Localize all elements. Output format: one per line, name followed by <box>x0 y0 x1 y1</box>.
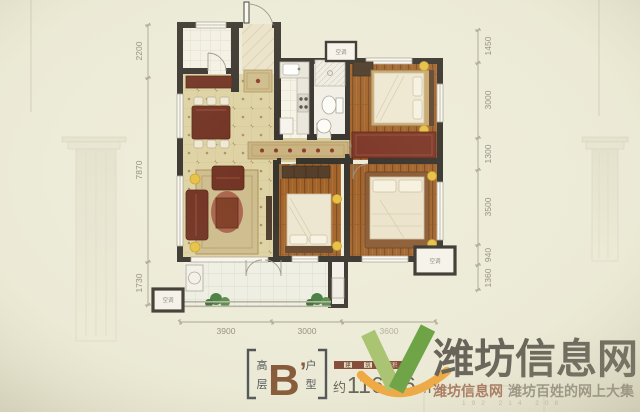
floorplan-photo: 空调 空调 空调 2200 7870 1730 1450 <box>0 0 640 412</box>
floorplan-canvas: 空调 空调 空调 2200 7870 1730 1450 <box>0 0 640 412</box>
photo-vignette <box>0 0 640 412</box>
